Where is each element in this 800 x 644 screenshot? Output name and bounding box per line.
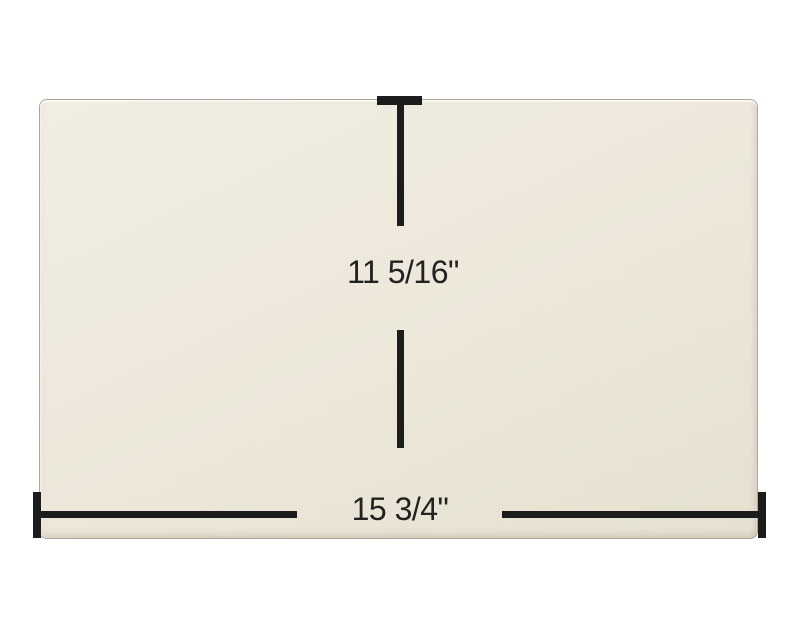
- height-dimension-line-upper: [397, 104, 404, 226]
- height-dimension-label: 11 5/16": [347, 256, 459, 288]
- width-dimension-line-left: [41, 511, 297, 518]
- width-dimension-line-right: [502, 511, 758, 518]
- dimension-diagram: 11 5/16" 15 3/4": [0, 0, 800, 644]
- height-dimension-line-lower: [397, 330, 404, 448]
- width-dimension-left-cap: [33, 492, 41, 538]
- width-dimension-right-cap: [758, 492, 766, 538]
- width-dimension-label: 15 3/4": [352, 493, 449, 525]
